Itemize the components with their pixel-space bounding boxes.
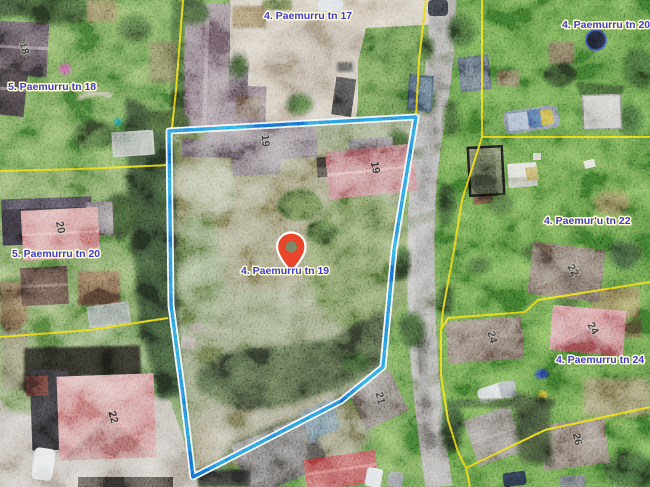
svg-text:5. Paemurru tn 18: 5. Paemurru tn 18	[8, 81, 96, 93]
svg-text:4. Paemurru tn 24: 4. Paemurru tn 24	[556, 354, 644, 366]
svg-text:4. Paemur'u tn 22: 4. Paemur'u tn 22	[544, 215, 631, 227]
svg-text:4. Paemurru tn 20: 4. Paemurru tn 20	[562, 19, 650, 31]
svg-text:5. Paemurru tn 20: 5. Paemurru tn 20	[12, 248, 100, 260]
svg-text:4. Paemurru tn 17: 4. Paemurru tn 17	[264, 10, 352, 22]
svg-text:4. Paemurru tn 19: 4. Paemurru tn 19	[241, 265, 329, 277]
